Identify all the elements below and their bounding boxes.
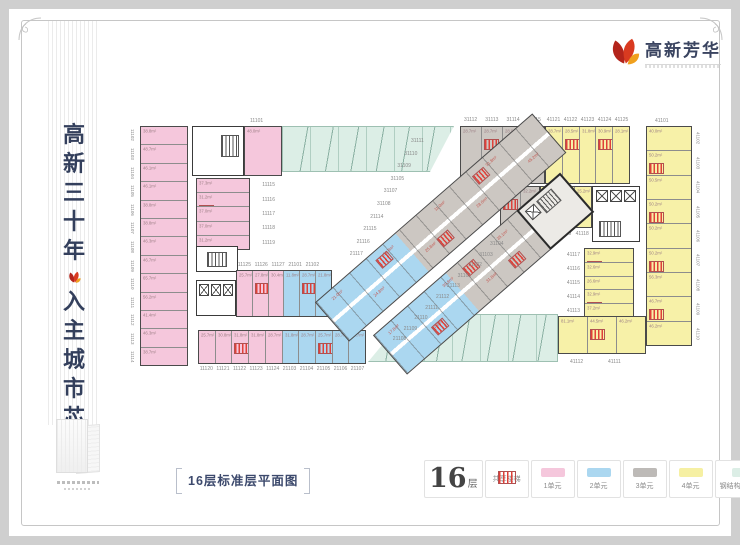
unit-room: 56.3m² xyxy=(647,273,691,297)
elevator-core-right xyxy=(592,186,640,242)
unit-area: 31.8m² xyxy=(582,129,595,134)
legend-label: 1单元 xyxy=(544,481,562,491)
unit-number: 21109 xyxy=(404,326,418,332)
unit-number: 21115 xyxy=(363,226,376,232)
unit-room: 28.1m² xyxy=(613,127,629,183)
unit-area: 17.8m² xyxy=(387,323,400,336)
unit-area: 45.2m² xyxy=(527,152,540,165)
stair-hatch-swatch xyxy=(498,471,516,484)
unit-number: 11109 xyxy=(130,260,135,272)
unit-area: 56.3m² xyxy=(649,275,662,280)
unit-area: 46.3m² xyxy=(143,239,156,244)
unit-number: 31105 xyxy=(391,176,405,182)
stair-core-topleft xyxy=(192,126,244,176)
unit-room: 56.2m² xyxy=(141,293,187,311)
unit-number: 21111 xyxy=(425,305,438,311)
unit-area: 46.7m² xyxy=(649,299,662,304)
poster: 高新三十年入主城市芯 高新芳华 38.8m²48.7m²46.1m²46.1m²… xyxy=(0,0,740,545)
unit-room: 27.8m² xyxy=(253,271,269,316)
unit-room: 46.3m² xyxy=(141,329,187,347)
west-unit-numbers: 1110211103111041110511106111071110811109… xyxy=(127,126,138,366)
unit-area: 25.7m² xyxy=(318,333,331,338)
unit-area: 37.2m² xyxy=(587,306,600,311)
unit-area: 31.8m² xyxy=(485,271,498,284)
unit-number: 41115 xyxy=(567,280,580,286)
east-unit-numbers: 4110241103411044110541106411074110841109… xyxy=(693,126,703,346)
unit-number: 41104 xyxy=(696,181,701,193)
unit-area: 50.5m² xyxy=(649,178,662,183)
unit-number: 41121 xyxy=(547,117,561,123)
unit-number: 11117 xyxy=(262,211,275,217)
floor-number: 16 xyxy=(429,464,467,494)
unit-room: 46.2m² xyxy=(647,322,691,345)
unit-area: 11.8m² xyxy=(286,273,299,278)
unit-number: 21106 xyxy=(334,366,348,372)
bottom-upper-numbers: 1112511126111272110121102 xyxy=(236,262,321,268)
unit-area: 41.4m² xyxy=(143,313,156,318)
inner-west-numbers: 1111511116111171111811119 xyxy=(253,178,275,250)
unit-room: 38.7m² xyxy=(141,348,187,365)
unit-area: 31.8m² xyxy=(285,333,298,338)
unit-number: 41101 xyxy=(655,118,669,124)
unit-area: 28.5m² xyxy=(565,129,578,134)
unit1-inner-column: 37.3m²31.2m²37.0m²37.0m²31.2m² xyxy=(196,178,250,250)
unit-area: 38.7m² xyxy=(143,350,156,355)
unit-number: 11125 xyxy=(238,262,251,268)
unit-room: 11.8m² xyxy=(284,271,300,316)
unit-number: 11127 xyxy=(272,262,285,268)
unit-room: 50.2m² xyxy=(647,200,691,224)
unit-number: 11111 xyxy=(130,297,135,308)
unit-area: 46.7m² xyxy=(143,258,156,263)
unit-number: 41122 xyxy=(564,117,578,123)
unit-area: 26.6m² xyxy=(587,279,600,284)
unit-room: 28.7m² xyxy=(266,331,283,363)
unit-number: 11110 xyxy=(130,278,135,290)
unit-area: 11.0m² xyxy=(433,200,446,212)
unit-number: 11122 xyxy=(233,366,246,372)
unit-number: 21112 xyxy=(436,294,449,300)
unit-room: 37.0m² xyxy=(197,207,249,221)
unit-number: 11121 xyxy=(216,366,229,372)
unit-room: 37.0m² xyxy=(197,222,249,236)
unit-number: 41123 xyxy=(581,117,595,123)
elevator-icon xyxy=(596,190,608,202)
unit-number: 11120 xyxy=(200,366,213,372)
unit-room: 32.9m² xyxy=(585,249,633,263)
unit-room: 48.7m² xyxy=(141,145,187,163)
unit-number: 11123 xyxy=(250,366,263,372)
unit-number: 11108 xyxy=(130,241,135,253)
unit-area: 40.0m² xyxy=(649,129,662,134)
unit-number: 11115 xyxy=(262,182,275,188)
unit-room: 65.7m² xyxy=(141,274,187,292)
unit-number: 41110 xyxy=(696,328,701,340)
unit-number: 21116 xyxy=(357,239,370,245)
unit-area: 50.2m² xyxy=(649,226,662,231)
unit-area: 31.8m² xyxy=(485,155,498,168)
unit-number: 11102 xyxy=(130,129,135,141)
legend: 16 层 共享楼梯1单元2单元3单元4单元钢结构双面玻璃 xyxy=(424,460,740,498)
unit-number: 41116 xyxy=(567,266,580,272)
unit-room: 31.8m² xyxy=(249,331,266,363)
color-swatch xyxy=(587,468,611,477)
caption-text: 16层标准层平面图 xyxy=(182,468,304,494)
elevator-icon xyxy=(199,284,209,296)
unit-number: 31102 xyxy=(468,262,482,268)
unit-number: 31114 xyxy=(507,117,520,123)
unit-number: 41106 xyxy=(696,230,701,242)
unit-number: 11105 xyxy=(130,185,135,197)
unit-number: 31112 xyxy=(464,117,477,123)
unit-number: 11104 xyxy=(130,167,135,179)
unit-room: 46.3m² xyxy=(141,237,187,255)
unit-room: 25.7m² xyxy=(316,331,333,363)
unit-area: 28.7m² xyxy=(302,273,315,278)
unit-number: 31109 xyxy=(397,163,411,169)
unit-number: 21110 xyxy=(414,315,427,321)
color-swatch xyxy=(732,468,740,477)
unit-number: 11116 xyxy=(262,197,275,203)
unit-area: 25.8m² xyxy=(424,241,437,254)
unit-number: 11113 xyxy=(130,333,135,345)
unit-number: 21117 xyxy=(350,251,363,257)
unit-number: 41118 xyxy=(576,231,589,237)
unit-number: 21113 xyxy=(447,283,460,289)
unit-area: 31.2m² xyxy=(199,238,212,243)
unit-area: 24.8m² xyxy=(373,286,386,299)
legend-item: 4单元 xyxy=(669,460,713,498)
unit-area: 46.2m² xyxy=(619,319,632,324)
unit-area: 81.1m² xyxy=(561,319,574,324)
unit-room: 81.1m² xyxy=(559,317,588,353)
unit-number: 31111 xyxy=(411,138,424,144)
unit-number: 21105 xyxy=(317,366,331,372)
unit-room: 48.0m² xyxy=(244,126,282,176)
unit-room: 30.9m² xyxy=(596,127,613,183)
unit1-west-wing: 38.8m²48.7m²46.1m²46.1m²38.8m²38.8m²46.3… xyxy=(140,126,188,366)
glass-strip-top xyxy=(282,126,454,172)
unit-area: 56.2m² xyxy=(143,295,156,300)
unit-room: 50.2m² xyxy=(647,224,691,248)
unit-area: 38.8m² xyxy=(143,129,156,134)
unit-area: 32.6m² xyxy=(587,265,600,270)
unit-room: 28.7m² xyxy=(300,271,316,316)
unit-number: 31107 xyxy=(384,188,398,194)
unit-room: 28.7m² xyxy=(299,331,316,363)
legend-floor: 16 层 xyxy=(424,460,483,498)
unit-number: 11112 xyxy=(130,314,135,326)
unit-room: 25.7m² xyxy=(199,331,216,363)
unit-area: 28.1m² xyxy=(615,129,628,134)
unit-area: 50.2m² xyxy=(649,202,662,207)
legend-label: 4单元 xyxy=(682,481,700,491)
unit-room: 46.7m² xyxy=(141,256,187,274)
unit-room: 30.8m² xyxy=(216,331,233,363)
bottom-lower-numbers: 1112011121111221112311124211032110421105… xyxy=(198,366,366,372)
legend-item: 共享楼梯 xyxy=(485,460,529,498)
unit-number: 41124 xyxy=(598,117,612,123)
top-yellow-numbers: 4112141122411234112441125 xyxy=(545,117,630,123)
unit-area: 30.8m² xyxy=(218,333,231,338)
unit-number: 21102 xyxy=(306,262,320,268)
unit-area: 21.8m² xyxy=(318,273,331,278)
unit-number: 31108 xyxy=(377,201,391,207)
unit-number: 31110 xyxy=(404,151,417,157)
unit-area: 31.8m² xyxy=(251,333,264,338)
unit-room: 46.1m² xyxy=(141,164,187,182)
unit-number: 11103 xyxy=(130,148,135,160)
building-illustration xyxy=(50,413,106,493)
unit-number: 31113 xyxy=(485,117,498,123)
floor-suffix: 层 xyxy=(468,475,478,490)
legend-label: 2单元 xyxy=(590,481,608,491)
unit4-inner-column: 32.9m²32.6m²26.6m²32.9m²37.2m² xyxy=(584,248,634,318)
unit-area: 27.8m² xyxy=(255,273,268,278)
unit-area: 28.7m² xyxy=(484,129,497,134)
unit-area: 28.0m² xyxy=(476,196,489,209)
unit-area: 32.9m² xyxy=(587,251,600,256)
unit-area: 28.7m² xyxy=(268,333,281,338)
unit-area: 25.7m² xyxy=(239,273,252,278)
unit-room: 44.5m² xyxy=(588,317,617,353)
elevator-bank-left xyxy=(196,280,236,316)
unit-number: 11101 xyxy=(250,118,263,124)
unit-room: 30.4m² xyxy=(269,271,285,316)
unit-area: 46.1m² xyxy=(143,166,156,171)
unit-number: 21103 xyxy=(283,366,297,372)
unit-number: 11119 xyxy=(262,240,275,246)
unit-area: 25.7m² xyxy=(201,333,214,338)
unit-room: 31.8m² xyxy=(232,331,249,363)
unit-room: 46.7m² xyxy=(647,297,691,321)
unit-room: 38.8m² xyxy=(141,219,187,237)
unit-number: 41112 xyxy=(570,359,583,365)
legend-label: 3单元 xyxy=(636,481,654,491)
unit-number: 41102 xyxy=(696,132,701,144)
unit-area: 50.2m² xyxy=(649,153,662,158)
unit-area: 32.9m² xyxy=(587,292,600,297)
unit-number: 41125 xyxy=(615,117,629,123)
unit-room: 31.2m² xyxy=(197,193,249,207)
unit-area: 21.0m² xyxy=(331,289,344,302)
unit-room: 31.8m² xyxy=(283,331,300,363)
unit-area: 25.2m² xyxy=(577,189,590,194)
unit-room: 50.2m² xyxy=(647,151,691,175)
color-swatch xyxy=(633,468,657,477)
unit-area: 46.1m² xyxy=(143,184,156,189)
unit-room: 40.0m² xyxy=(647,127,691,151)
elevator-icon xyxy=(610,190,622,202)
unit-room: 25.7m² xyxy=(237,271,253,316)
unit-number: 11126 xyxy=(255,262,268,268)
unit-room: 26.6m² xyxy=(585,277,633,291)
unit-number: 41117 xyxy=(567,252,580,258)
unit-area: 46.2m² xyxy=(649,324,662,329)
unit-area: 38.8m² xyxy=(143,203,156,208)
unit-number: 31104 xyxy=(490,241,504,247)
unit-area: 48.7m² xyxy=(143,147,156,152)
bracket-right xyxy=(304,468,310,494)
unit-area: 28.7m² xyxy=(301,333,314,338)
unit-room: 50.5m² xyxy=(647,176,691,200)
unit-number: 41114 xyxy=(567,294,580,300)
building-caption-line xyxy=(64,488,92,490)
unit-room: 38.8m² xyxy=(141,201,187,219)
unit-number: 21101 xyxy=(288,262,302,268)
unit-room: 41.4m² xyxy=(141,311,187,329)
bottom-lower-row: 25.7m²30.8m²31.8m²31.8m²28.7m²31.8m²28.7… xyxy=(198,330,366,364)
unit-area: 28.7m² xyxy=(463,129,476,134)
unit-area: 38.8m² xyxy=(143,221,156,226)
legend-item: 1单元 xyxy=(531,460,575,498)
bottom-upper-row: 25.7m²27.8m²30.4m²11.8m²28.7m²21.8m² xyxy=(236,270,332,317)
unit-number: 41113 xyxy=(567,308,580,314)
unit-room: 28.5m² xyxy=(563,127,580,183)
unit-number: 41103 xyxy=(696,157,701,169)
elevator-icon xyxy=(223,284,233,296)
unit-area: 50.2m² xyxy=(649,251,662,256)
unit-room: 50.2m² xyxy=(647,249,691,273)
unit-room: 38.8m² xyxy=(141,127,187,145)
unit-area: 37.0m² xyxy=(199,209,212,214)
color-swatch xyxy=(679,468,703,477)
unit-number: 11118 xyxy=(262,225,275,231)
unit-room: 32.9m² xyxy=(585,290,633,304)
unit-number: 31101 xyxy=(458,273,472,279)
stair-core-left xyxy=(196,246,238,272)
building-caption-line xyxy=(57,481,99,484)
unit-area: 30.4m² xyxy=(271,273,284,278)
inner-east-numbers: 4111741116411154111441113 xyxy=(556,248,580,318)
unit-area: 30.9m² xyxy=(598,129,611,134)
unit-area: 46.3m² xyxy=(143,331,156,336)
unit-area: 31.8m² xyxy=(234,333,247,338)
unit4-bottom-block: 81.1m²44.5m²46.2m² xyxy=(558,316,646,354)
unit-number: 11124 xyxy=(266,366,279,372)
unit-area: 37.3m² xyxy=(199,181,212,186)
unit-number: 11106 xyxy=(130,204,135,216)
unit-area: 35.1m² xyxy=(496,229,509,242)
unit-room: 46.1m² xyxy=(141,182,187,200)
unit-area: 44.5m² xyxy=(590,319,603,324)
unit-room: 31.8m² xyxy=(580,127,597,183)
legend-item: 钢结构双面玻璃 xyxy=(715,460,740,498)
unit-number: 21108 xyxy=(393,336,407,342)
unit-area: 37.0m² xyxy=(199,224,212,229)
unit-area: 65.7m² xyxy=(143,276,156,281)
legend-item: 3单元 xyxy=(623,460,667,498)
unit4-east-wing: 40.0m²50.2m²50.5m²50.2m²50.2m²50.2m²56.3… xyxy=(646,126,692,346)
unit-number: 41108 xyxy=(696,279,701,291)
elevator-icon xyxy=(624,190,636,202)
unit-number: 11114 xyxy=(130,351,135,363)
color-swatch xyxy=(541,468,565,477)
unit-room: 46.2m² xyxy=(617,317,645,353)
unit-number: 41107 xyxy=(696,254,701,266)
unit-number: 21107 xyxy=(351,366,365,372)
unit-number: 21114 xyxy=(370,214,383,220)
legend-item: 2单元 xyxy=(577,460,621,498)
unit-room: 37.3m² xyxy=(197,179,249,193)
plan-caption: 16层标准层平面图 xyxy=(176,468,310,494)
elevator-icon xyxy=(211,284,221,296)
unit-number: 31103 xyxy=(479,252,493,258)
unit-room: 32.6m² xyxy=(585,263,633,277)
unit-number: 41109 xyxy=(696,303,701,315)
unit-number: 41105 xyxy=(696,206,701,218)
unit-area: 32.2m² xyxy=(523,189,536,194)
unit-number: 11107 xyxy=(130,222,135,234)
unit-number: 41111 xyxy=(608,359,621,365)
legend-label: 钢结构双面玻璃 xyxy=(720,481,740,491)
unit-area: 31.2m² xyxy=(199,195,212,200)
unit-number: 21104 xyxy=(300,366,314,372)
